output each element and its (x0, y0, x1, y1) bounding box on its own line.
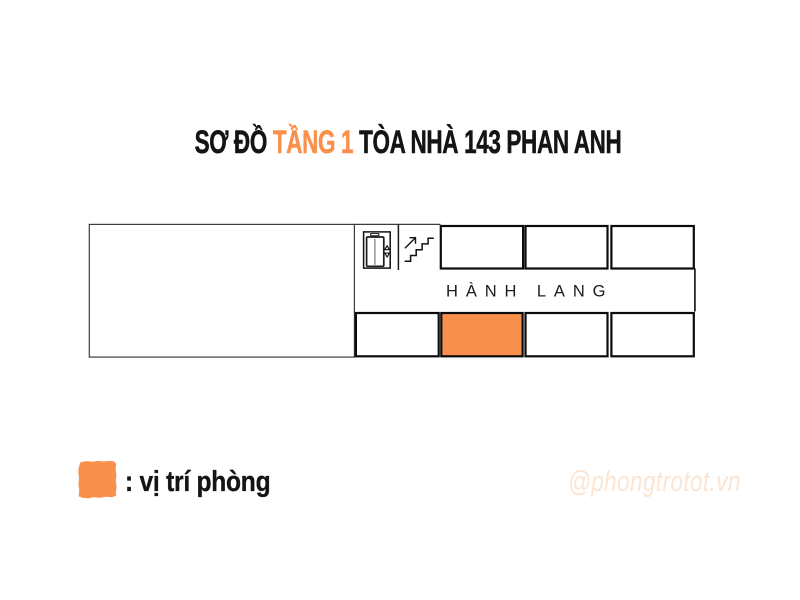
svg-text:HÀNH LANG: HÀNH LANG (446, 282, 613, 301)
